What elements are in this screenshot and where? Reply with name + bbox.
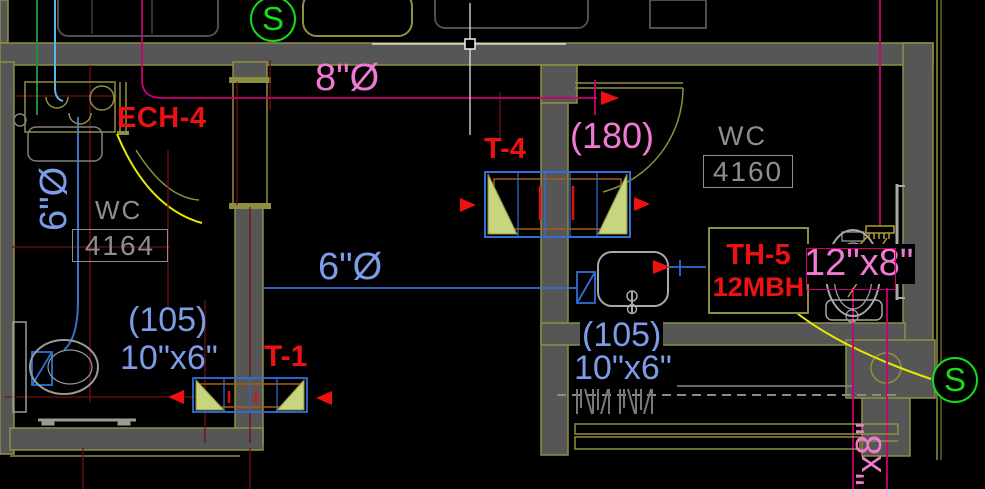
hanger-symbols — [577, 389, 652, 414]
room-left-number-box: 4164 — [72, 229, 168, 262]
duct-size-10x6-left-label[interactable]: 10"x6" — [120, 341, 218, 377]
duct-size-6-riser-label[interactable]: 6"Ø — [35, 159, 75, 239]
room-left-number: 4164 — [85, 230, 155, 262]
heater-tag: TH-5 — [726, 239, 790, 272]
room-left-name: WC — [95, 197, 142, 224]
supply-symbol-letter: S — [262, 0, 284, 38]
room-right-number-box: 4160 — [703, 155, 793, 188]
diffuser-t1[interactable] — [193, 378, 307, 412]
duct-size-12x8-label[interactable]: 12"x8" — [802, 244, 915, 284]
grille-tag-t4[interactable]: T-4 — [484, 134, 526, 164]
lavatory-counter[interactable] — [25, 82, 115, 132]
grab-bar-left — [38, 420, 136, 425]
wall-chase — [117, 77, 271, 209]
toilet-left[interactable] — [13, 322, 98, 412]
duct-size-8-vertical-label[interactable]: "x8" — [850, 409, 888, 489]
duct-size-6-run-label[interactable]: 6"Ø — [318, 248, 382, 288]
grille-tag-t1[interactable]: T-1 — [264, 341, 307, 373]
heater-tag-box[interactable]: TH-5 12MBH — [708, 227, 809, 314]
bench-fixtures — [58, 0, 706, 36]
cart-fixture[interactable] — [14, 114, 102, 161]
room-right-number: 4160 — [713, 156, 783, 188]
supply-symbol-bottom[interactable]: S — [932, 357, 978, 403]
olive-fixture — [303, 0, 412, 36]
room-right-name: WC — [718, 122, 767, 150]
supply-symbol-letter: S — [944, 361, 966, 399]
crosshair-cursor[interactable] — [372, 3, 566, 135]
airflow-105-left-label[interactable]: (105) — [128, 303, 207, 339]
duct-size-10x6-right-label[interactable]: 10"x6" — [572, 351, 674, 387]
exhaust-tag-ech4[interactable]: ECH-4 — [117, 103, 207, 133]
airflow-180-label[interactable]: (180) — [570, 117, 654, 155]
cad-canvas[interactable]: S S 8"Ø ECH-4 T-4 (180) WC 4160 6"Ø WC 4… — [0, 0, 985, 489]
duct-size-8-round-label[interactable]: 8"Ø — [315, 59, 379, 99]
heater-capacity: 12MBH — [713, 272, 805, 303]
sink-center[interactable] — [598, 252, 668, 314]
